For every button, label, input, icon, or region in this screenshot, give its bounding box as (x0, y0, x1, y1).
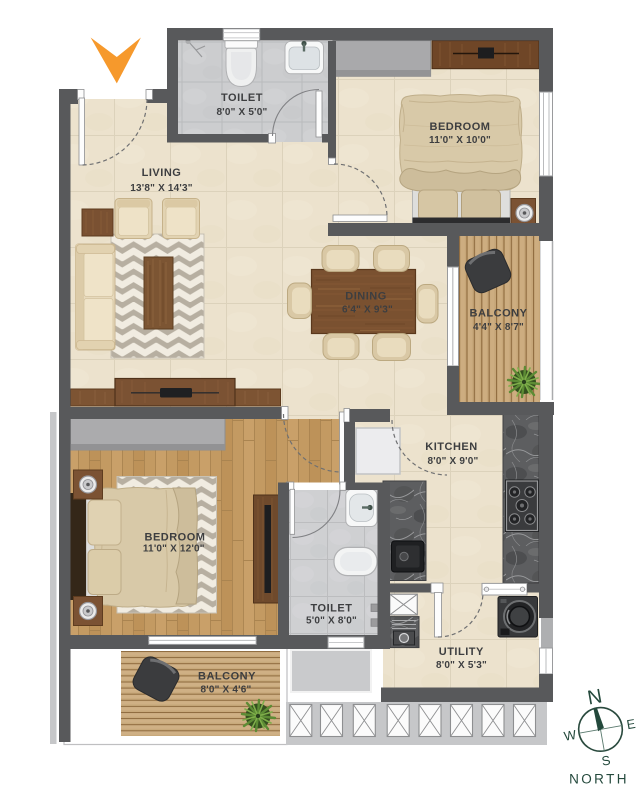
svg-text:4'4" X 8'7": 4'4" X 8'7" (473, 322, 524, 333)
svg-text:NORTH: NORTH (569, 772, 629, 787)
svg-text:BALCONY: BALCONY (470, 308, 528, 320)
svg-text:5'0" X 8'0": 5'0" X 8'0" (306, 616, 357, 627)
svg-text:8'0" X 5'3": 8'0" X 5'3" (436, 660, 487, 671)
svg-text:8'0" X 4'6": 8'0" X 4'6" (201, 685, 252, 696)
svg-text:TOILET: TOILET (311, 603, 353, 615)
svg-text:8'0" X 9'0": 8'0" X 9'0" (428, 456, 479, 467)
svg-text:6'4" X 9'3": 6'4" X 9'3" (342, 305, 393, 316)
svg-text:11'0" X 10'0": 11'0" X 10'0" (429, 135, 491, 146)
svg-text:BALCONY: BALCONY (198, 671, 256, 683)
svg-text:BEDROOM: BEDROOM (430, 121, 491, 133)
svg-text:13'8" X 14'3": 13'8" X 14'3" (130, 183, 192, 194)
svg-text:LIVING: LIVING (142, 167, 182, 179)
svg-text:KITCHEN: KITCHEN (425, 441, 477, 453)
svg-text:11'0" X 12'0": 11'0" X 12'0" (143, 544, 205, 555)
svg-text:DINING: DINING (345, 291, 387, 303)
svg-text:BEDROOM: BEDROOM (145, 532, 206, 544)
svg-text:UTILITY: UTILITY (439, 646, 484, 658)
svg-text:8'0" X 5'0": 8'0" X 5'0" (217, 107, 268, 118)
svg-text:TOILET: TOILET (221, 92, 263, 104)
